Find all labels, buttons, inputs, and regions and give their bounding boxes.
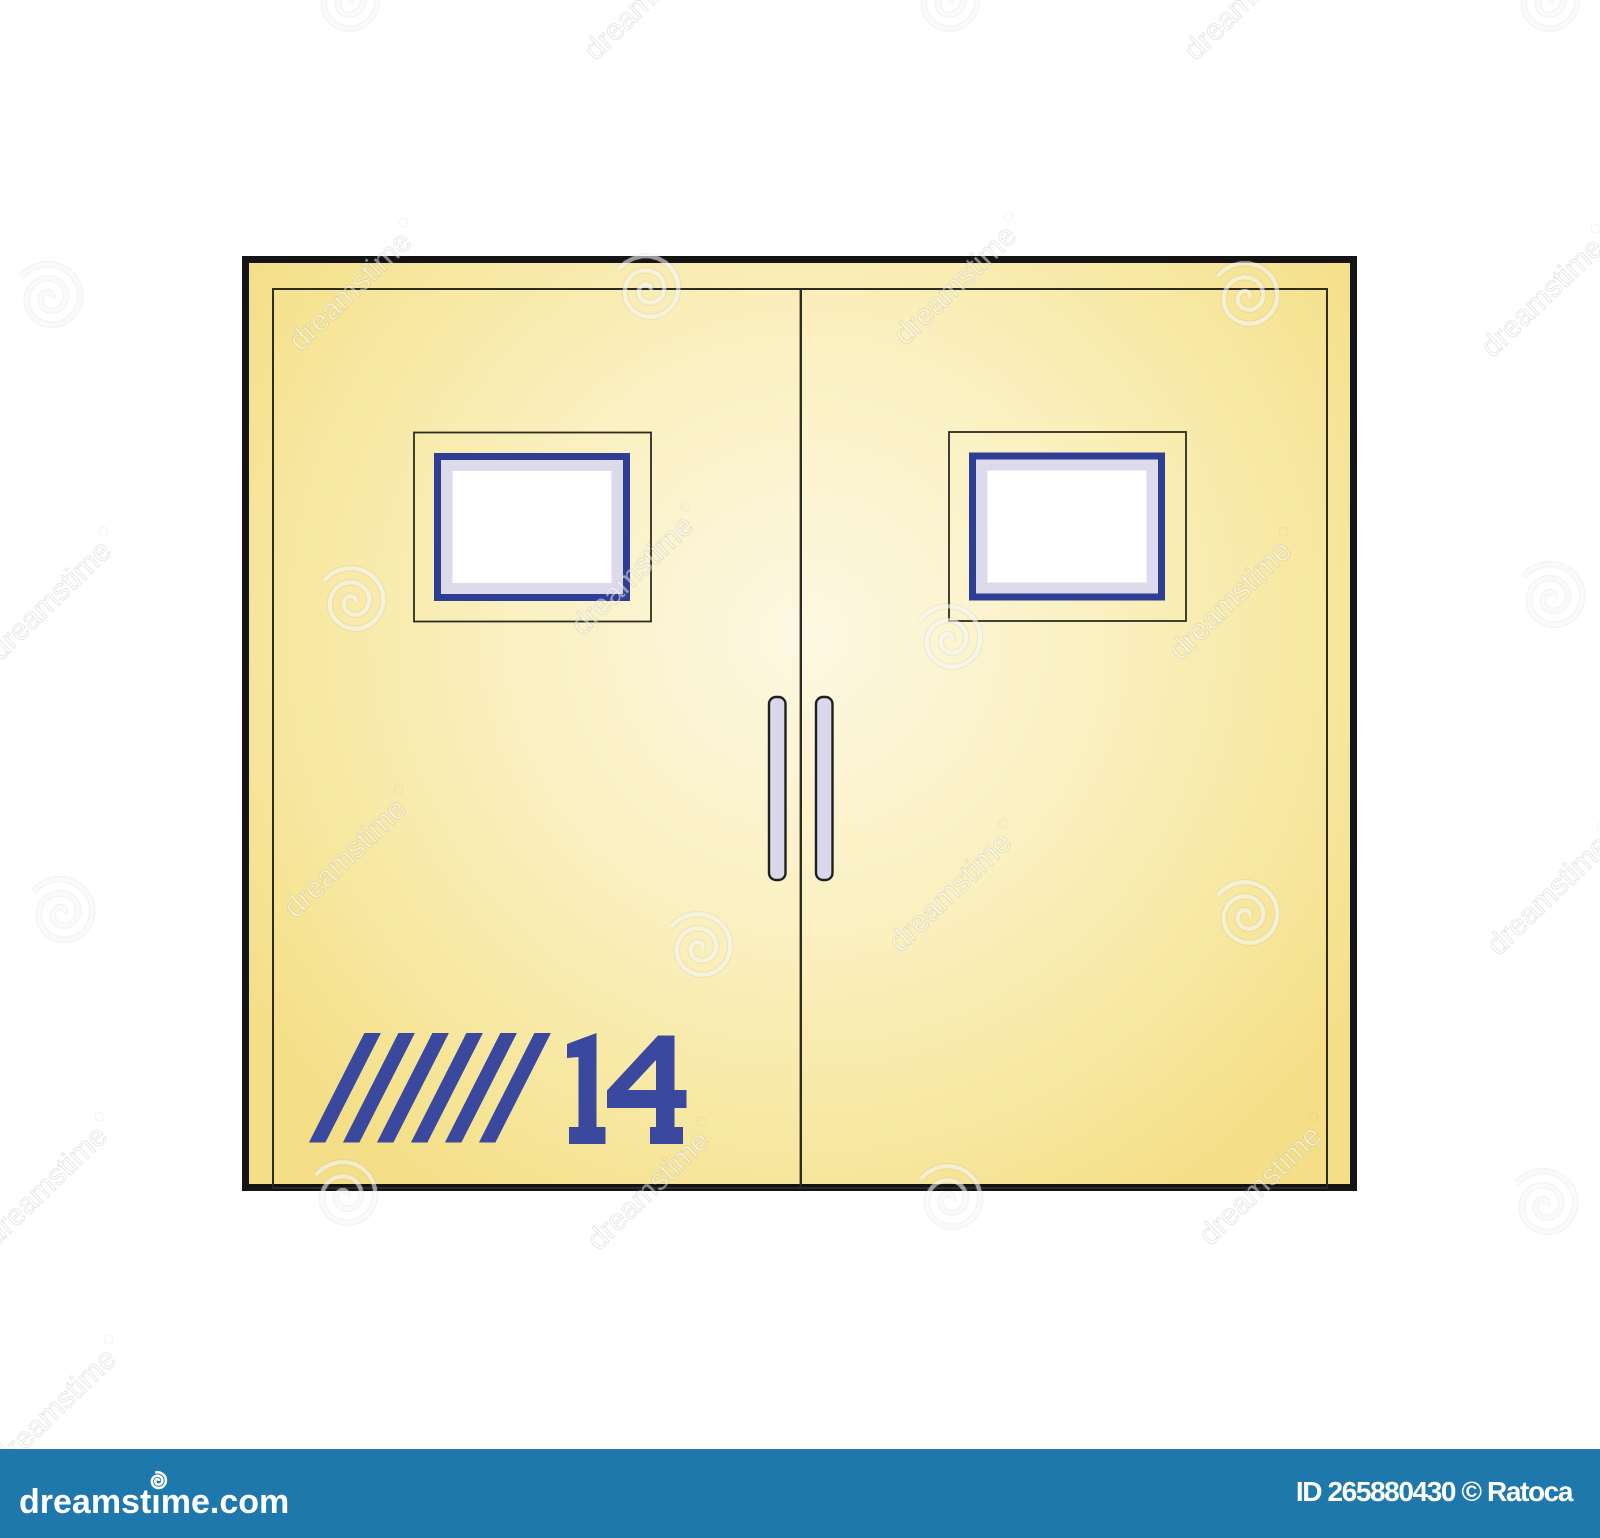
svg-text:ID 265880430 © Ratoca: ID 265880430 © Ratoca: [1296, 1476, 1574, 1507]
svg-text:dreamstıme.com: dreamstıme.com: [19, 1483, 289, 1521]
